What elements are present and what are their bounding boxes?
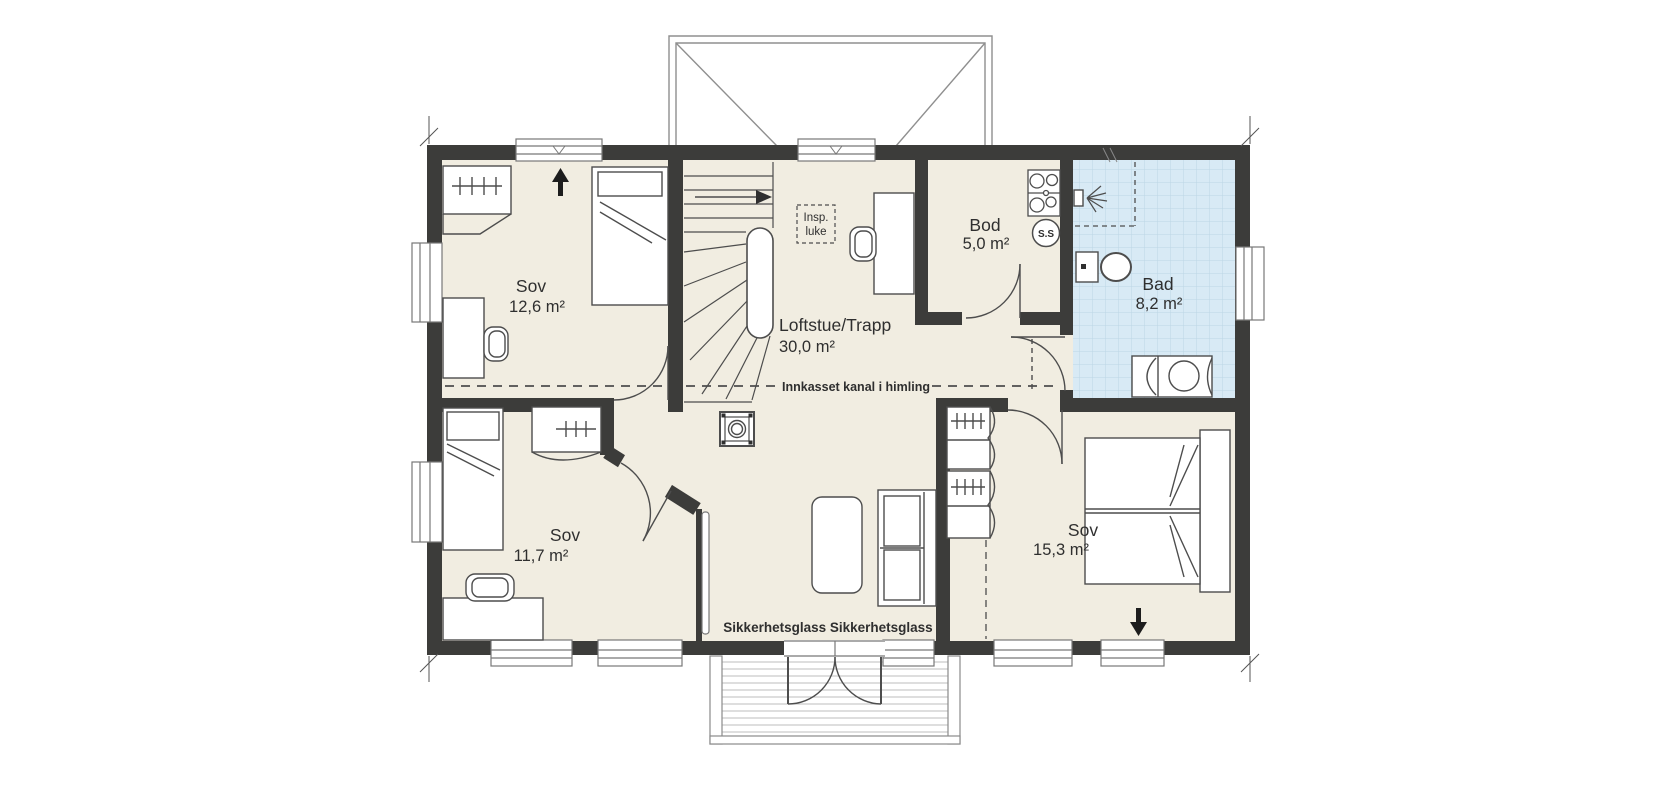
wall-bad-west-a xyxy=(1060,160,1073,335)
glass-partition xyxy=(702,512,709,634)
desk-icon xyxy=(443,598,543,640)
window-left-sov1 xyxy=(412,243,442,322)
room-area-bod: 5,0 m² xyxy=(963,235,1010,253)
balcony-rail-left xyxy=(710,656,722,744)
wall-bad-west-b xyxy=(1060,390,1073,398)
inspection-hatch-label-2: luke xyxy=(805,226,826,238)
window-bottom-3 xyxy=(883,640,934,666)
wall-bod-west xyxy=(915,160,928,325)
wardrobe-icon xyxy=(532,407,601,460)
window-bottom-4 xyxy=(994,640,1072,666)
bed-icon xyxy=(592,167,668,305)
room-label-loftstue: Loftstue/Trapp xyxy=(779,315,891,335)
dormer-roof-outline xyxy=(669,36,992,148)
ceiling-duct-label: Innkasset kanal i himling xyxy=(782,380,930,394)
floor-plan-page: Sov 12,6 m² Loftstue/Trapp 30,0 m² Bod 5… xyxy=(0,0,1670,800)
chair-icon xyxy=(850,227,876,261)
sofa-icon xyxy=(878,490,936,606)
balcony xyxy=(710,656,960,744)
room-area-sov2: 11,7 m² xyxy=(514,547,569,565)
room-label-bad: Bad xyxy=(1142,274,1173,294)
wall-bod-south-a xyxy=(915,312,962,325)
stair-handrail xyxy=(747,228,773,338)
window-right-bad xyxy=(1236,247,1264,320)
inspection-hatch-label-1: Insp. xyxy=(804,212,829,224)
room-area-loftstue: 30,0 m² xyxy=(779,338,835,356)
window-bottom-5 xyxy=(1101,640,1164,666)
balcony-rail-bottom xyxy=(710,736,960,744)
room-area-sov3: 15,3 m² xyxy=(1033,541,1089,559)
floor-plan-drawing: Sov 12,6 m² Loftstue/Trapp 30,0 m² Bod 5… xyxy=(0,0,1670,800)
balcony-rail-right xyxy=(948,656,960,744)
chimney-icon xyxy=(720,412,754,446)
wall-sov3-north-b xyxy=(1060,398,1235,412)
ss-marker-label: S.S xyxy=(1038,229,1054,240)
chair-icon xyxy=(484,327,508,361)
window-top-loftstue xyxy=(798,139,875,161)
window-bottom-2 xyxy=(598,640,682,666)
desk-icon xyxy=(443,298,484,378)
wardrobe-icon xyxy=(947,407,995,469)
wall-bod-south-b xyxy=(1020,312,1063,325)
wall-stairwell-west xyxy=(668,160,683,412)
room-area-bad: 8,2 m² xyxy=(1136,295,1183,313)
room-label-sov1: Sov xyxy=(516,276,546,296)
balcony-doors xyxy=(784,640,885,704)
window-left-sov2 xyxy=(412,462,442,542)
sink-vanity-icon xyxy=(1132,356,1212,397)
room-label-sov3: Sov xyxy=(1068,520,1098,540)
safety-glass-label: Sikkerhetsglass Sikkerhetsglass xyxy=(723,620,932,635)
desk-icon xyxy=(874,193,914,294)
room-area-sov1: 12,6 m² xyxy=(509,298,565,316)
wardrobe-icon xyxy=(947,471,995,538)
chair-icon xyxy=(466,574,514,601)
coffee-table-icon xyxy=(812,497,862,593)
window-top-sov1 xyxy=(516,139,602,161)
stove-icon xyxy=(1028,170,1060,216)
room-label-bod: Bod xyxy=(969,215,1000,235)
window-bottom-1 xyxy=(491,640,572,666)
room-label-sov2: Sov xyxy=(550,525,580,545)
double-bed-icon xyxy=(1085,430,1230,592)
bed-icon xyxy=(443,408,503,550)
